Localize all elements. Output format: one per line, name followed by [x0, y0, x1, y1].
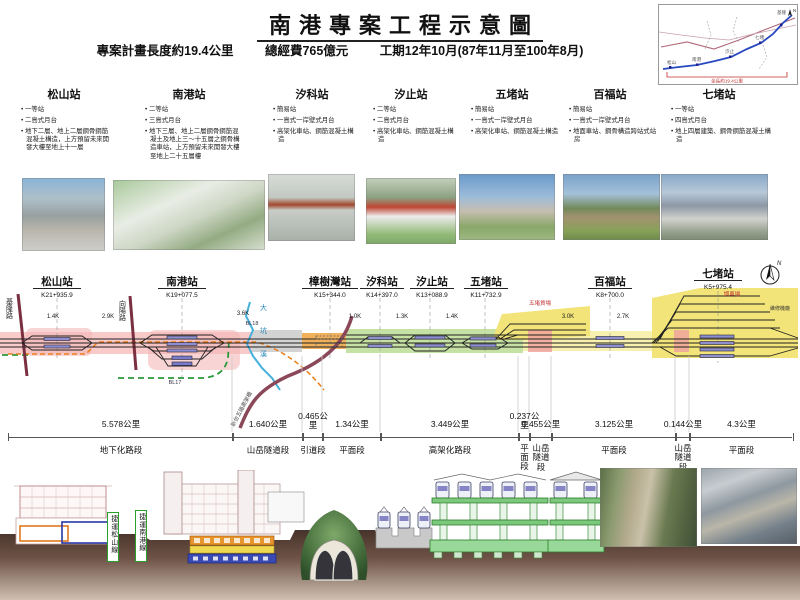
station-name: 松山站	[14, 86, 114, 102]
stat-length: 專案計畫長度約19.4公里	[97, 44, 234, 58]
station-name: 百福站	[562, 86, 658, 102]
diagram-station-songshan: 松山站 K21+935.9	[33, 275, 81, 299]
photo-wudu-rendering	[459, 174, 555, 240]
inset-label-songshan: 松山	[667, 59, 677, 66]
photo-songshan-rendering	[22, 178, 105, 251]
svg-text:K13+088.9: K13+088.9	[416, 292, 448, 299]
wudu-yard-label: 五堵貨場	[529, 299, 552, 307]
station-structure: 地下二層、地上二層鋼骨鋼筋混凝土構造，上方預留未來開發大樓至地上十一層	[21, 128, 114, 153]
inset-route-line	[663, 15, 792, 69]
svg-text:K15+344.0: K15+344.0	[314, 292, 346, 299]
inset-length-bracket	[667, 72, 787, 77]
station-name: 七堵站	[664, 86, 774, 102]
svg-text:K14+397.0: K14+397.0	[366, 292, 398, 299]
svg-text:1.3K: 1.3K	[396, 314, 408, 320]
nangang-project-schematic: 南港專案工程示意圖 專案計畫長度約19.4公里 總經費765億元 工期12年10…	[0, 0, 800, 600]
station-platform: 一島式一岸壁式月台	[471, 117, 560, 125]
station-platform: 一島式一岸壁式月台	[569, 117, 658, 125]
segment-surface-4: 4.3公里平面段	[689, 433, 794, 441]
svg-text:南港站: 南港站	[166, 275, 198, 288]
tunnel-patch-1	[528, 330, 552, 352]
mrt-nangang-line-label: 捷運南港線	[135, 510, 147, 562]
segment-tunnel-2: 0.455公里山岳隧道段	[529, 433, 553, 441]
svg-text:K21+935.9: K21+935.9	[41, 292, 73, 299]
svg-text:K5+975.4: K5+975.4	[704, 284, 732, 291]
inset-label-xizhi: 汐止	[725, 48, 735, 55]
station-name: 南港站	[138, 86, 240, 102]
segment-ramp: 0.465公里引道段	[302, 433, 324, 441]
cs-viaduct-1	[430, 474, 550, 558]
inset-north-arrow: N	[788, 8, 796, 16]
segment-elevated: 3.449公里高架化路段	[380, 433, 520, 441]
station-grade: 二等站	[373, 106, 456, 114]
station-info-nangang: 南港站 二等站 三島式月台 地下三層、地上二層鋼骨鋼筋混凝土及地上三～十五層之鋼…	[138, 86, 240, 161]
photo-xizhi-rendering	[366, 178, 456, 244]
station-platform: 二島式月台	[21, 117, 114, 125]
inset-length-label: 全長約19.4公里	[711, 78, 743, 85]
inset-map-svg: 松山 南港 汐止 七堵 基隆 全長約19.4公里 N	[659, 5, 797, 84]
svg-text:3.0K: 3.0K	[562, 314, 574, 320]
station-grade: 簡易站	[471, 106, 560, 114]
photo-qidu-yard-aerial-1	[600, 468, 697, 547]
photo-nangang-rendering	[113, 180, 265, 250]
svg-text:百福站: 百福站	[594, 275, 626, 288]
river-label: 大坑溪	[260, 303, 268, 373]
svg-text:汐科站: 汐科站	[366, 275, 398, 288]
svg-text:汐止站: 汐止站	[416, 275, 448, 288]
compass: N	[761, 261, 782, 284]
station-structure: 地上四層建築、鋼骨鋼筋混凝土構造	[671, 128, 774, 145]
station-structure: 高架化車站、鋼筋混凝土構造	[373, 128, 456, 145]
station-grade: 簡易站	[569, 106, 658, 114]
photo-xike-rendering	[268, 174, 355, 241]
depot-label: 維修機廠	[770, 305, 790, 312]
station-structure: 地下三層、地上二層鋼骨鋼筋混凝土及地上三～十五層之鋼骨構造車站，上方預留未來開發…	[145, 128, 240, 161]
station-grade: 二等站	[145, 106, 240, 114]
svg-text:五堵站: 五堵站	[470, 275, 502, 288]
station-platform: 二島式月台	[373, 117, 456, 125]
inset-creek	[705, 21, 711, 49]
inset-label-qidu: 七堵	[755, 34, 765, 41]
svg-text:K8+700.0: K8+700.0	[596, 292, 624, 299]
cs-at-grade	[376, 507, 432, 548]
diagram-station-xizhi: 汐止站 K13+088.9	[410, 275, 454, 299]
compass-n: N	[777, 261, 782, 267]
segment-surface-3: 3.125公里平面段	[551, 433, 677, 441]
svg-text:N: N	[793, 8, 796, 13]
cs-tunnel-portal	[301, 510, 368, 580]
project-stats: 專案計畫長度約19.4公里 總經費765億元 工期12年10月(87年11月至1…	[60, 40, 620, 59]
photo-baifu-rendering	[563, 174, 660, 240]
svg-text:樟樹灣站: 樟樹灣站	[309, 275, 351, 288]
stat-duration: 工期12年10月(87年11月至100年8月)	[380, 44, 584, 58]
svg-text:1.0K: 1.0K	[349, 314, 361, 320]
station-info-songshan: 松山站 一等站 二島式月台 地下二層、地上二層鋼骨鋼筋混凝土構造，上方預留未來開…	[14, 86, 114, 153]
cs-songshan-underground	[14, 486, 112, 544]
mrt-songshan-line-label: 捷運松山線	[107, 512, 119, 562]
station-structure: 高架化車站、鋼筋混凝土構造	[273, 128, 358, 145]
segment-tunnel-1: 1.640公里山岳隧道段	[232, 433, 304, 441]
svg-text:1.4K: 1.4K	[446, 314, 458, 320]
stat-cost: 總經費765億元	[265, 44, 348, 58]
xiangyang-road-label: 向陽路	[119, 299, 127, 322]
inset-creek3	[759, 45, 767, 69]
station-structure: 高架化車站、鋼筋混凝土構造	[471, 128, 560, 136]
svg-text:1.4K: 1.4K	[47, 314, 59, 320]
station-platform: 四島式月台	[671, 117, 774, 125]
qidu-yard-label: 調車場	[724, 290, 741, 298]
station-platform: 一島式一岸壁式月台	[273, 117, 358, 125]
station-name: 五堵站	[464, 86, 560, 102]
svg-text:2.7K: 2.7K	[617, 314, 629, 320]
station-name: 汐科站	[266, 86, 358, 102]
photo-qidu-yard-aerial-2	[701, 468, 797, 544]
inset-road	[661, 18, 795, 49]
photo-qidu-rendering	[661, 174, 768, 240]
tunnel-patch-2	[674, 330, 689, 352]
mrt-bl18-label: BL18	[246, 321, 259, 327]
station-info-wudu: 五堵站 簡易站 一島式一岸壁式月台 高架化車站、鋼筋混凝土構造	[464, 86, 560, 136]
diagram-station-zhangshuwan: 樟樹灣站 K15+344.0	[302, 275, 358, 299]
station-grade: 一等站	[671, 106, 774, 114]
station-info-baifu: 百福站 簡易站 一島式一岸壁式月台 地面車站、鋼骨構造跨站式站房	[562, 86, 658, 144]
diagram-station-xike: 汐科站 K14+397.0	[360, 275, 404, 299]
inset-station-dots	[669, 24, 782, 68]
station-info-xizhi: 汐止站 二等站 二島式月台 高架化車站、鋼筋混凝土構造	[366, 86, 456, 144]
keelung-road-label: 基隆路	[6, 297, 14, 320]
mrt-bl17-label: BL17	[169, 380, 182, 386]
segment-underground: 5.578公里地下化路段	[8, 433, 234, 441]
station-grade: 簡易站	[273, 106, 358, 114]
station-info-xike: 汐科站 簡易站 一島式一岸壁式月台 高架化車站、鋼筋混凝土構造	[266, 86, 358, 144]
qidu-yard-area	[652, 288, 798, 358]
diagram-station-nangang: 南港站 K19+077.5	[158, 275, 206, 299]
station-structure: 地面車站、鋼骨構造跨站式站房	[569, 128, 658, 145]
inset-label-keelung: 基隆	[777, 9, 787, 16]
inset-label-nangang: 南港	[692, 56, 702, 63]
station-name: 汐止站	[366, 86, 456, 102]
svg-text:3.6K: 3.6K	[237, 311, 249, 317]
diagram-station-wudu: 五堵站 K11+732.9	[464, 275, 508, 299]
segment-surface-1: 1.34公里平面段	[322, 433, 382, 441]
diagram-station-qidu: 七堵站 K5+975.4	[694, 267, 742, 291]
station-info-qidu: 七堵站 一等站 四島式月台 地上四層建築、鋼骨鋼筋混凝土構造	[664, 86, 774, 144]
cs-viaduct-2	[548, 472, 604, 552]
svg-text:2.9K: 2.9K	[102, 314, 114, 320]
diagram-station-baifu: 百福站 K8+700.0	[588, 275, 632, 299]
train-icons	[378, 507, 430, 528]
station-grade: 一等站	[21, 106, 114, 114]
svg-text:K19+077.5: K19+077.5	[166, 292, 198, 299]
svg-text:K11+732.9: K11+732.9	[470, 292, 502, 299]
station-platform: 三島式月台	[145, 117, 240, 125]
inset-route-map: 松山 南港 汐止 七堵 基隆 全長約19.4公里 N	[658, 4, 798, 85]
svg-text:松山站: 松山站	[41, 275, 73, 288]
svg-text:七堵站: 七堵站	[702, 267, 734, 280]
